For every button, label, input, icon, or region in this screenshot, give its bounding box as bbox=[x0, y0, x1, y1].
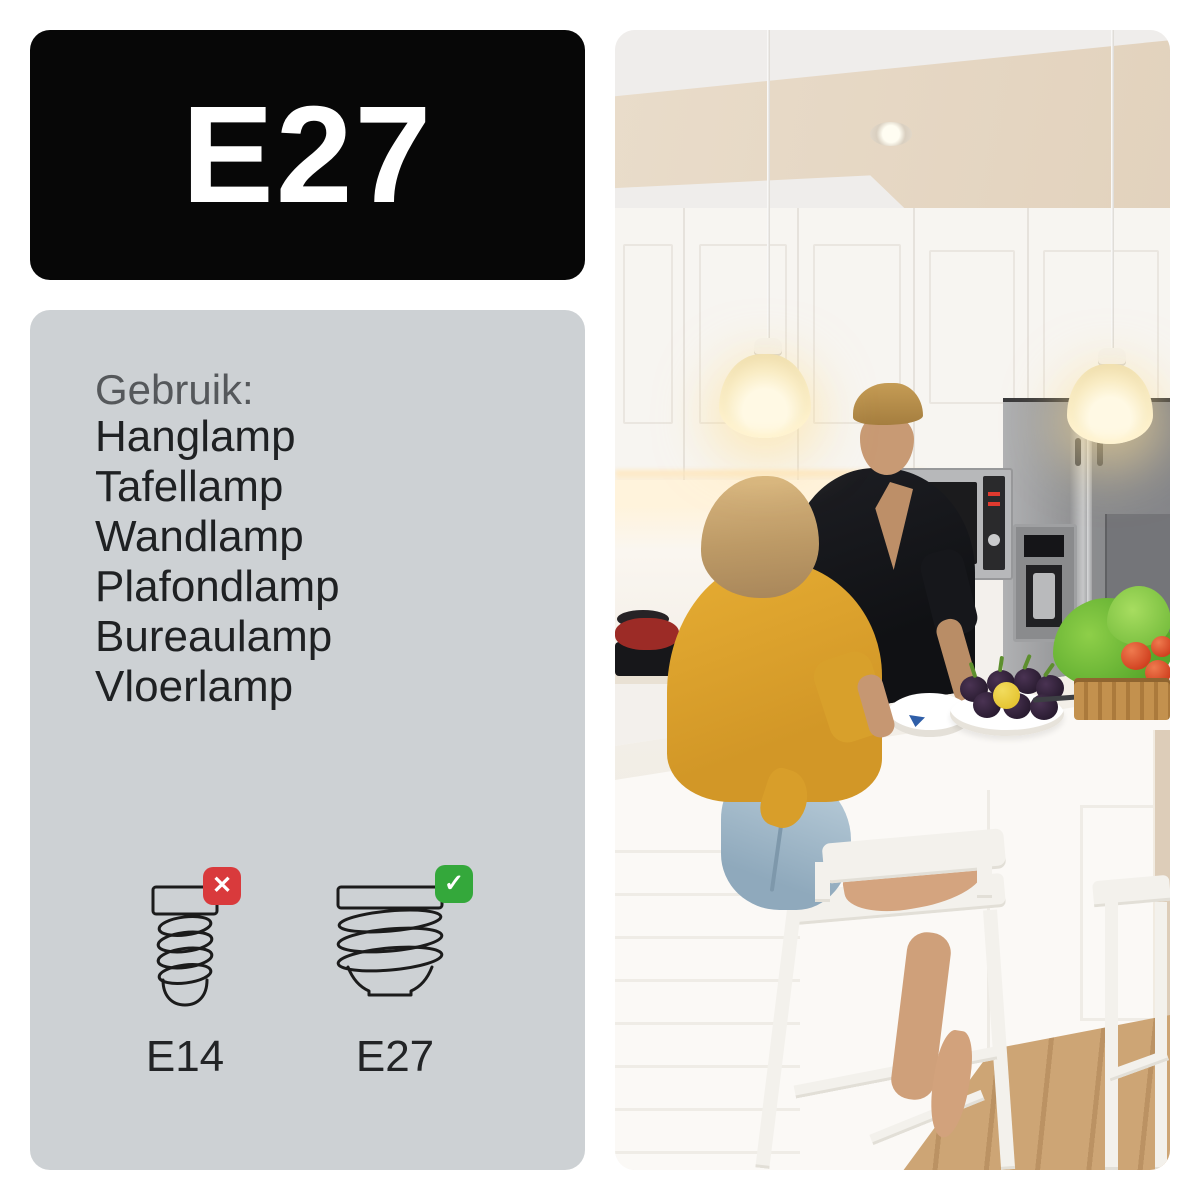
lamp-cord bbox=[1111, 30, 1114, 354]
usage-item: Bureaulamp bbox=[95, 612, 340, 662]
check-glyph: ✓ bbox=[444, 872, 464, 896]
usage-heading: Gebruik: bbox=[95, 366, 254, 414]
usage-item: Plafondlamp bbox=[95, 562, 340, 612]
lemon bbox=[993, 682, 1020, 709]
microwave-knob bbox=[988, 534, 1000, 546]
fitting-type-label: E27 bbox=[182, 86, 434, 224]
fridge-handle bbox=[1075, 438, 1081, 466]
tomato bbox=[1151, 636, 1170, 657]
e27-socket-icon bbox=[333, 884, 447, 1004]
stool-leg bbox=[1105, 898, 1118, 1170]
dispenser-lever bbox=[1033, 573, 1055, 619]
e14-label: E14 bbox=[115, 1032, 255, 1082]
usage-item: Wandlamp bbox=[95, 512, 340, 562]
stool-post bbox=[977, 848, 992, 898]
usage-item: Hanglamp bbox=[95, 412, 340, 462]
recessed-ceiling-light bbox=[870, 122, 912, 146]
stool-post bbox=[815, 862, 830, 902]
cabinet-panel bbox=[929, 250, 1015, 404]
usage-item: Vloerlamp bbox=[95, 662, 340, 712]
cabinet-door-seam bbox=[797, 208, 799, 480]
lamp-cord bbox=[767, 30, 770, 344]
e27-label: E27 bbox=[325, 1032, 465, 1082]
usage-item: Tafellamp bbox=[95, 462, 340, 512]
cabinet-panel bbox=[623, 244, 673, 424]
red-pan bbox=[615, 618, 679, 650]
woven-basket bbox=[1074, 678, 1170, 720]
stool-leg bbox=[1155, 902, 1167, 1170]
dispenser-well bbox=[1026, 565, 1062, 627]
microwave-control-panel bbox=[983, 476, 1005, 570]
fitting-type-banner: E27 bbox=[30, 30, 585, 280]
cross-icon: ✕ bbox=[203, 867, 241, 905]
microwave-led bbox=[988, 502, 1000, 506]
usage-list: Hanglamp Tafellamp Wandlamp Plafondlamp … bbox=[95, 412, 340, 712]
cabinet-door-seam bbox=[683, 208, 685, 480]
microwave-led bbox=[988, 492, 1000, 496]
bowl-logo bbox=[909, 715, 925, 727]
cross-glyph: ✕ bbox=[212, 874, 232, 898]
check-icon: ✓ bbox=[435, 865, 473, 903]
dispenser-display bbox=[1024, 535, 1064, 557]
product-infographic: E27 Gebruik: Hanglamp Tafellamp Wandlamp… bbox=[0, 0, 1200, 1200]
kitchen-photo bbox=[615, 30, 1170, 1170]
